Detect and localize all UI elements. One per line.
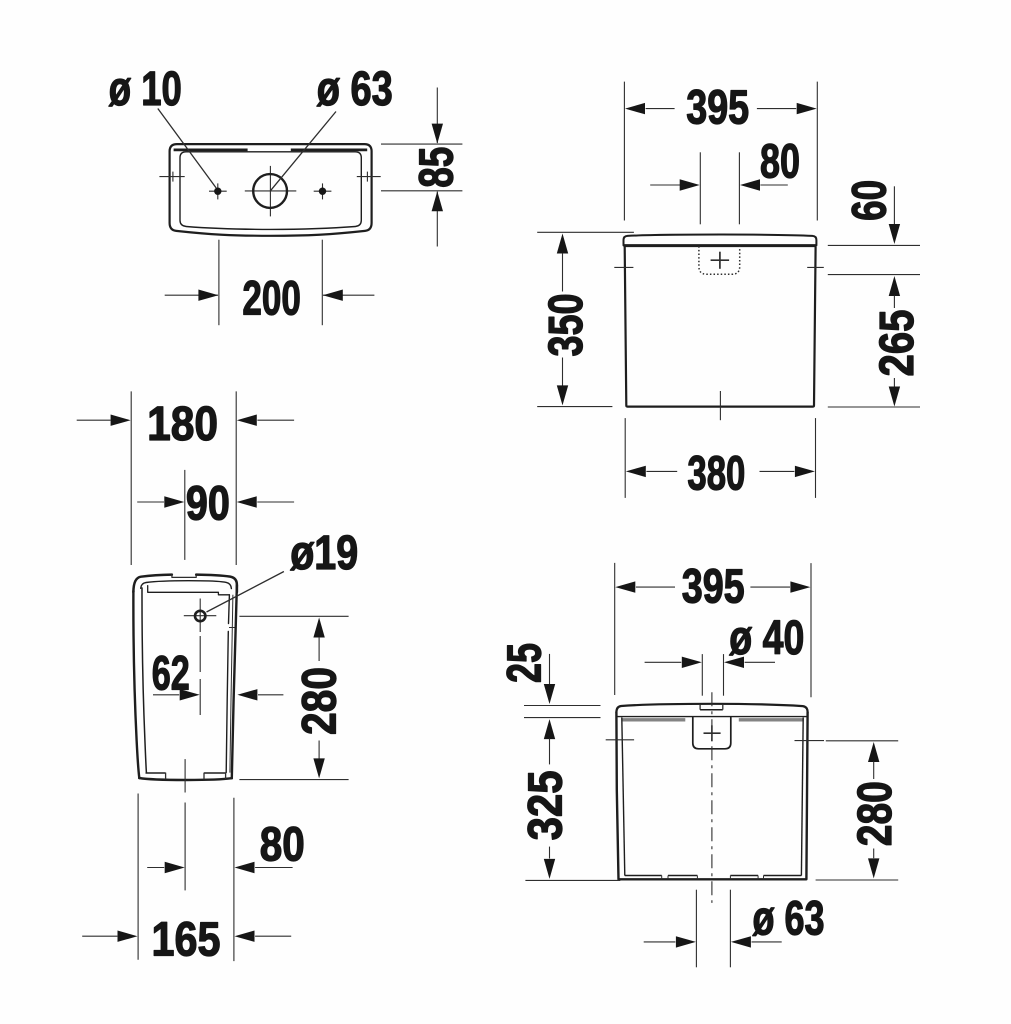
svg-text:380: 380 (687, 447, 745, 500)
svg-text:395: 395 (682, 560, 745, 613)
svg-text:395: 395 (686, 82, 749, 135)
svg-text:ø 40: ø 40 (729, 612, 804, 665)
svg-text:ø 63: ø 63 (753, 893, 825, 946)
svg-text:62: 62 (152, 647, 190, 700)
svg-text:350: 350 (540, 294, 593, 357)
svg-text:200: 200 (242, 272, 301, 325)
svg-text:165: 165 (152, 913, 221, 966)
svg-text:280: 280 (294, 667, 347, 735)
svg-text:ø 10: ø 10 (109, 63, 182, 116)
svg-text:ø19: ø19 (290, 527, 358, 580)
svg-text:85: 85 (410, 147, 463, 188)
svg-text:25: 25 (499, 643, 552, 683)
svg-text:80: 80 (260, 819, 305, 872)
svg-text:325: 325 (520, 770, 573, 840)
svg-text:60: 60 (844, 180, 897, 221)
svg-text:280: 280 (849, 781, 902, 846)
svg-text:180: 180 (147, 398, 218, 451)
svg-text:90: 90 (186, 478, 230, 531)
svg-text:80: 80 (760, 136, 800, 189)
svg-text:ø 63: ø 63 (317, 63, 393, 116)
svg-text:265: 265 (871, 310, 924, 377)
